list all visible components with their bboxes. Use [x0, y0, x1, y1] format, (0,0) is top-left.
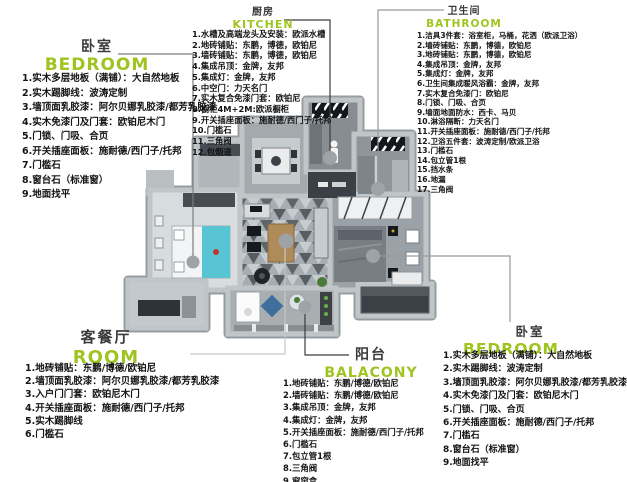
spec-item: 4.实木免漆门及门套：欧铂尼木门 — [443, 390, 627, 403]
spec-item: 5.门锁、门吸、合页 — [22, 130, 216, 145]
spec-item: 2.实木踢脚线：波涛定制 — [443, 363, 627, 376]
spec-item: 5.集成灯：金牌，友邦 — [192, 72, 331, 83]
spec-item: 2.墙砖铺贴：东鹏/博德/欧铂尼 — [283, 389, 424, 401]
spec-item: 7.门槛石 — [443, 430, 627, 443]
spec-item: 9.地面找平 — [22, 188, 216, 203]
spec-item: 7.实木复合免漆门：欧铂尼 — [417, 89, 582, 99]
spec-item: 1.水槽及高端龙头及安装：欧派水槽 — [192, 29, 331, 40]
spec-item: 1.地砖铺贴：东鹏/博德/欧铂尼 — [283, 377, 424, 389]
zone-balcony: 阳台 BALACONY 1.地砖铺贴：东鹏/博德/欧铂尼2.墙砖铺贴：东鹏/博德… — [301, 344, 441, 381]
spec-list-bedroom-bottom-right: 1.实木多层地板（满铺）：大自然地板2.实木踢脚线：波涛定制3.墙顶面乳胶漆：阿… — [443, 350, 627, 471]
spec-item: 5.门锁、门吸、合页 — [443, 404, 627, 417]
spec-item: 1.实木多层地板（满铺）：大自然地板 — [443, 350, 627, 363]
spec-item: 10.淋浴隔断：力天名门 — [417, 117, 582, 127]
zone-bathroom: 卫生间 BATHROOM 1.洁具3件套：浴室柜，马桶，花洒（欧派卫浴）2.墙砖… — [394, 2, 534, 30]
room-title-cn: 卫生间 — [394, 2, 534, 17]
spec-item: 2.实木踢脚线：波涛定制 — [22, 87, 216, 102]
spec-list-bedroom-top-left: 1.实木多层地板（满铺）：大自然地板2.实木踢脚线：波涛定制3.墙顶面乳胶漆：阿… — [22, 72, 216, 203]
spec-item: 10.门槛石 — [192, 125, 331, 136]
spec-item: 11.开关插座面板：施耐德/西门子/托邦 — [417, 127, 582, 137]
spec-item: 7.实木复合免漆门套：欧铂尼 — [192, 93, 331, 104]
spec-item: 6.门槛石 — [25, 428, 219, 441]
spec-item: 9.地面找平 — [443, 457, 627, 470]
spec-item: 16.地漏 — [417, 175, 582, 185]
spec-item: 8.窗台石（标准窗） — [22, 174, 216, 189]
floorplan-spec-sheet: 卧室 BEDROOM 1.实木多层地板（满铺）：大自然地板2.实木踢脚线：波涛定… — [0, 0, 627, 482]
spec-item: 1.实木多层地板（满铺）：大自然地板 — [22, 72, 216, 87]
zone-bedroom-top-left: 卧室 BEDROOM 1.实木多层地板（满铺）：大自然地板2.实木踢脚线：波涛定… — [22, 36, 172, 75]
spec-item: 11.三角阀 — [192, 136, 331, 147]
spec-item: 6.卫生间集成暖风浴霸：金牌，友邦 — [417, 79, 582, 89]
spec-item: 8.橱柜4M+2M:欧派橱柜 — [192, 104, 331, 115]
spec-item: 9.开关插座面板：施耐德/西门子/托邦 — [192, 115, 331, 126]
spec-item: 14.包立管1根 — [417, 156, 582, 166]
spec-item: 3.集成吊顶：金牌，友邦 — [283, 401, 424, 413]
spec-item: 5.实木踢脚线 — [25, 415, 219, 428]
spec-item: 5.开关插座面板：施耐德/西门子/托邦 — [283, 426, 424, 438]
spec-item: 7.门槛石 — [22, 159, 216, 174]
spec-item: 4.集成吊顶：金牌，友邦 — [417, 60, 582, 70]
spec-item: 6.中空门：力天名门 — [192, 83, 331, 94]
room-title-cn: 客餐厅 — [36, 326, 176, 347]
zone-living-room: 客餐厅 ROOM 1.地砖铺贴：东鹏/博德/欧铂尼2.墙顶面乳胶漆：阿尔贝娜乳胶… — [36, 326, 176, 368]
spec-item: 3.墙砖铺贴：东鹏，博德，欧铂尼 — [192, 50, 331, 61]
spec-item: 17.三角阀 — [417, 185, 582, 195]
spec-item: 1.洁具3件套：浴室柜，马桶，花洒（欧派卫浴） — [417, 31, 582, 41]
spec-item: 3.入户门门套：欧铂尼木门 — [25, 388, 219, 401]
spec-item: 1.地砖铺贴：东鹏/博德/欧铂尼 — [25, 362, 219, 375]
spec-item: 3.墙顶面乳胶漆：阿尔贝娜乳胶漆/都芳乳胶漆 — [443, 377, 627, 390]
leader-dot-living — [279, 234, 294, 249]
spec-item: 4.集成吊顶：金牌，友邦 — [192, 61, 331, 72]
zone-kitchen: 厨房 KITCHEN 1.水槽及高端龙头及安装：欧派水槽2.地砖铺贴：东鹏，博德… — [193, 3, 333, 31]
spec-item: 7.包立管1根 — [283, 450, 424, 462]
spec-item: 4.集成灯：金牌，友邦 — [283, 414, 424, 426]
spec-item: 8.三角阀 — [283, 462, 424, 474]
spec-item: 2.地砖铺贴：东鹏，博德，欧铂尼 — [192, 40, 331, 51]
spec-item: 5.集成灯：金牌，友邦 — [417, 69, 582, 79]
spec-item: 8.门锁、门吸、合页 — [417, 98, 582, 108]
leader-dot-bedroom-left — [187, 256, 200, 269]
spec-list-kitchen: 1.水槽及高端龙头及安装：欧派水槽2.地砖铺贴：东鹏，博德，欧铂尼3.墙砖铺贴：… — [192, 29, 331, 157]
spec-item: 13.门槛石 — [417, 146, 582, 156]
spec-item: 4.实木免漆门及门套：欧铂尼木门 — [22, 116, 216, 131]
spec-list-bathroom: 1.洁具3件套：浴室柜，马桶，花洒（欧派卫浴）2.墙砖铺贴：东鹏，博德，欧铂尼3… — [417, 31, 582, 194]
spec-item: 12.卫浴五件套：波涛定制/欧派卫浴 — [417, 137, 582, 147]
spec-item: 4.开关插座面板：施耐德/西门子/托邦 — [25, 402, 219, 415]
spec-item: 8.窗台石（标准窗） — [443, 444, 627, 457]
spec-item: 6.门槛石 — [283, 438, 424, 450]
spec-list-living: 1.地砖铺贴：东鹏/博德/欧铂尼2.墙顶面乳胶漆：阿尔贝娜乳胶漆/都芳乳胶漆3.… — [25, 362, 219, 441]
leader-dot-bathroom — [371, 182, 385, 196]
spec-item: 15.挡水条 — [417, 165, 582, 175]
zone-bedroom-bottom-right: 卧室 BEDROOM 1.实木多层地板（满铺）：大自然地板2.实木踢脚线：波涛定… — [441, 321, 581, 358]
room-title-cn: 阳台 — [301, 344, 441, 364]
spec-item: 2.墙顶面乳胶漆：阿尔贝娜乳胶漆/都芳乳胶漆 — [25, 375, 219, 388]
spec-list-balcony: 1.地砖铺贴：东鹏/博德/欧铂尼2.墙砖铺贴：东鹏/博德/欧铂尼3.集成吊顶：金… — [283, 377, 424, 482]
spec-item: 9.墙面地面防水：西卡、马贝 — [417, 108, 582, 118]
spec-item: 6.开关插座面板：施耐德/西门子/托邦 — [22, 145, 216, 160]
leader-dot-bedroom-right — [366, 249, 380, 263]
room-title-cn: 厨房 — [193, 3, 333, 18]
spec-item: 3.地砖铺贴：东鹏，博德，欧铂尼 — [417, 50, 582, 60]
spec-item: 12.包烟道 — [192, 147, 331, 158]
spec-item: 9.窗帘盒 — [283, 475, 424, 482]
room-title-en: BATHROOM — [394, 18, 534, 30]
room-title-cn: 卧室 — [441, 321, 581, 340]
spec-item: 3.墙顶面乳胶漆：阿尔贝娜乳胶漆/都芳乳胶漆 — [22, 101, 216, 116]
room-title-cn: 卧室 — [22, 36, 172, 56]
spec-item: 6.开关插座面板：施耐德/西门子/托邦 — [443, 417, 627, 430]
leader-dot-balcony — [299, 301, 312, 314]
spec-item: 2.墙砖铺贴：东鹏，博德，欧铂尼 — [417, 41, 582, 51]
